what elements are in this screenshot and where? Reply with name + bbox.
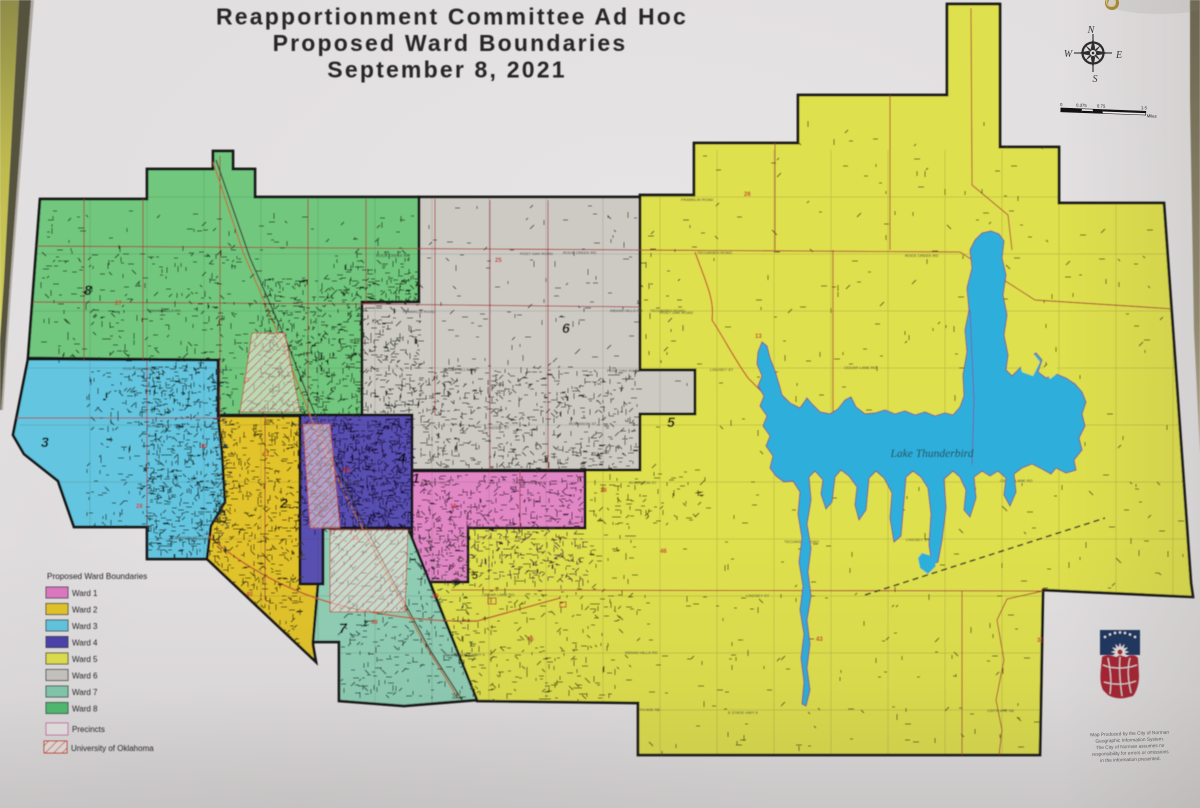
svg-text:Reapportionment Committee Ad H: Reapportionment Committee Ad Hoc: [216, 4, 688, 30]
svg-text:ROBINSON ST: ROBINSON ST: [569, 421, 597, 426]
svg-text:POST OAK ROAD: POST OAK ROAD: [660, 310, 693, 315]
svg-text:Lake Thunderbird: Lake Thunderbird: [890, 448, 974, 460]
svg-text:POST OAK ROAD: POST OAK ROAD: [520, 251, 553, 256]
svg-text:4: 4: [397, 450, 406, 466]
svg-text:E STATE HWY 9: E STATE HWY 9: [421, 480, 452, 485]
svg-text:18: 18: [600, 488, 607, 494]
svg-text:FRANKLIN ROAD: FRANKLIN ROAD: [681, 197, 714, 202]
svg-text:ALAMEDA ST: ALAMEDA ST: [147, 423, 173, 428]
svg-text:Proposed Ward Boundaries: Proposed Ward Boundaries: [273, 30, 628, 56]
svg-text:POST OAK ROAD: POST OAK ROAD: [607, 368, 640, 373]
svg-text:FRANKLIN ROAD: FRANKLIN ROAD: [403, 309, 436, 314]
svg-text:25: 25: [495, 258, 502, 264]
svg-text:ROCK CREEK RD: ROCK CREEK RD: [563, 250, 596, 255]
svg-text:INDIAN HILLS RD: INDIAN HILLS RD: [610, 308, 643, 313]
svg-text:30: 30: [200, 444, 207, 450]
svg-text:September 8, 2021: September 8, 2021: [327, 57, 566, 83]
svg-text:LINDSEY ST: LINDSEY ST: [486, 425, 510, 430]
svg-text:TECUMSEH ROAD: TECUMSEH ROAD: [697, 250, 732, 255]
svg-text:ROBINSON ST: ROBINSON ST: [629, 480, 657, 485]
svg-text:6: 6: [562, 320, 570, 336]
svg-text:28: 28: [136, 504, 143, 510]
svg-text:POST OAK ROAD: POST OAK ROAD: [123, 366, 156, 371]
svg-text:27: 27: [115, 301, 122, 307]
svg-text:LINDSEY ST: LINDSEY ST: [710, 367, 734, 372]
svg-text:11: 11: [263, 452, 270, 458]
svg-text:INDIAN HILLS RD: INDIAN HILLS RD: [443, 367, 476, 372]
svg-text:24: 24: [343, 468, 350, 474]
svg-text:ROCK CREEK RD: ROCK CREEK RD: [905, 253, 938, 258]
svg-text:CEDAR LANE RD: CEDAR LANE RD: [844, 365, 877, 370]
svg-text:ROCK CREEK RD: ROCK CREEK RD: [376, 253, 409, 258]
svg-text:5: 5: [667, 414, 675, 430]
svg-text:ROBINSON ST: ROBINSON ST: [170, 535, 198, 540]
svg-text:13: 13: [755, 334, 762, 340]
svg-text:2: 2: [279, 495, 288, 511]
svg-text:3: 3: [41, 434, 49, 450]
svg-text:8: 8: [84, 282, 92, 298]
svg-text:1: 1: [412, 470, 420, 486]
svg-text:INDIAN HILLS RD: INDIAN HILLS RD: [148, 308, 181, 313]
svg-text:CEDAR LANE RD: CEDAR LANE RD: [513, 480, 546, 485]
svg-text:16: 16: [450, 504, 457, 510]
svg-text:26: 26: [744, 192, 751, 198]
svg-text:CEDAR LANE RD: CEDAR LANE RD: [1000, 478, 1033, 483]
